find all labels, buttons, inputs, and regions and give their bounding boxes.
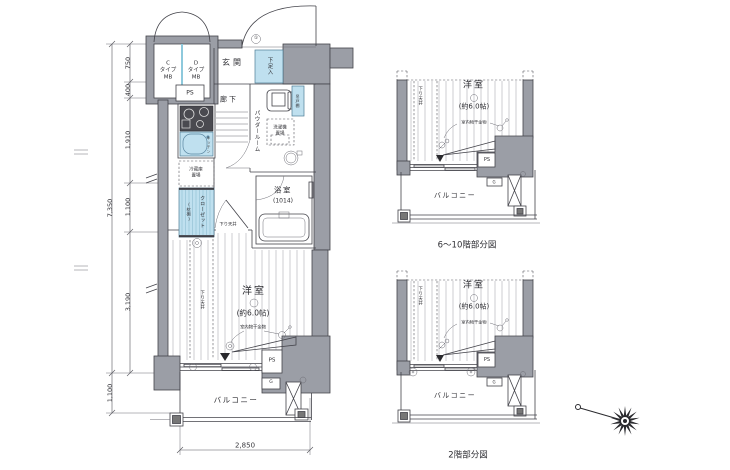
pp-upper-gas: G xyxy=(492,180,495,185)
vanity-sink-icon xyxy=(284,151,302,165)
laundry-note-label: 室内物干金物 xyxy=(240,325,266,330)
mb-d-line2: タイプ xyxy=(188,68,205,75)
entrance-label: 玄関 xyxy=(222,58,244,68)
pp-lower-balcony: バルコニー xyxy=(434,392,476,401)
pp-lower-room-size: (約6.0帖) xyxy=(459,303,490,312)
break-marks xyxy=(146,174,157,293)
mb-c-line3: MB xyxy=(164,74,173,81)
ps-top-label: PS xyxy=(186,89,193,97)
mb-box-c: C タイプ MB xyxy=(160,61,177,82)
washer-line2: 置場 xyxy=(276,131,285,137)
pp-lower-ps: PS xyxy=(484,357,490,363)
bathroom-size-label: (1014) xyxy=(273,197,293,205)
dim-seg-750: 750 xyxy=(124,57,132,69)
window xyxy=(180,353,262,371)
room-size-label: (約6.0帖) xyxy=(237,308,270,317)
pp-upper-lowered-ceiling: 下り天井 xyxy=(417,86,422,105)
dim-seg-3190: 3,190 xyxy=(124,293,132,312)
dim-width: 2,850 xyxy=(235,442,255,451)
closet xyxy=(179,188,214,237)
toilet-icon xyxy=(267,90,294,111)
mb-d-line3: MB xyxy=(192,74,201,81)
entry-arrow xyxy=(220,353,230,361)
lowered-ceiling-label-v: 下り天井 xyxy=(199,290,204,309)
laundry-hook-icon xyxy=(226,342,234,350)
pp-upper-ps: PS xyxy=(484,157,490,163)
hallway-label: 廊下 xyxy=(220,96,238,105)
compass-north-icon xyxy=(576,405,640,437)
fridge-label: 冷蔵庫 置場 xyxy=(189,167,203,178)
pp-lower-lowered-ceiling: 下り天井 xyxy=(417,286,422,305)
rail-end-box xyxy=(170,413,183,426)
kitchen-label: キッチン xyxy=(207,136,212,154)
pp-lower-caption: 2階部分図 xyxy=(448,451,487,462)
cabinet-label: 吊戸棚 xyxy=(296,94,301,108)
dim-total-height: 7,350 xyxy=(106,199,114,218)
pp-lower-gas: G xyxy=(492,380,495,385)
stove-icon xyxy=(180,106,213,131)
pp-upper-caption: 6〜10階部分図 xyxy=(438,241,497,252)
main-floor-plan xyxy=(146,6,353,426)
mb-c-line2: タイプ xyxy=(160,68,177,75)
ps-bottom-label: PS xyxy=(269,358,276,365)
dim-seg-1910: 1,910 xyxy=(124,131,132,150)
floorplan-sheet: C タイプ MB D タイプ MB PS ① 玄関 下足入 廊下 キッチン 冷蔵… xyxy=(0,0,730,470)
mb-d-line1: D xyxy=(194,61,198,68)
entry-mark: ① xyxy=(254,36,258,42)
dim-seg-1100: 1,100 xyxy=(124,198,132,217)
gas-label: G xyxy=(269,380,273,386)
dim-balcony-depth: 1,100 xyxy=(106,384,114,403)
room-label: 洋室 xyxy=(242,286,266,299)
powder-room-label: パウダールーム xyxy=(253,110,260,152)
ceiling-light-icon xyxy=(250,299,258,307)
pp-upper-balcony: バルコニー xyxy=(434,192,476,201)
dim-seg-400: 400 xyxy=(124,84,132,96)
closet-sub-label: (枕棚) xyxy=(186,202,191,222)
pp-upper-room-size: (約6.0帖) xyxy=(459,103,490,112)
closet-label: クローゼット xyxy=(199,196,205,229)
bathroom-label: 浴室 xyxy=(274,185,292,194)
mb-box-d: D タイプ MB xyxy=(188,61,205,82)
pp-lower-room: 洋室 xyxy=(463,280,485,291)
drain-box xyxy=(295,409,308,420)
shoe-box-label: 下足入 xyxy=(266,57,273,75)
pp-upper-room: 洋室 xyxy=(463,80,485,91)
hall-floor xyxy=(216,112,248,142)
washer-label: 洗濯機 置場 xyxy=(273,125,287,136)
balcony-label: バルコニー xyxy=(214,395,259,404)
mb-c-line1: C xyxy=(166,61,170,68)
lowered-ceiling-label-h: 下り天井 xyxy=(219,222,236,227)
fridge-line2: 置場 xyxy=(192,173,201,179)
pp-lower-laundry-note: 室内物干金物 xyxy=(461,319,486,324)
bathtub-icon xyxy=(259,212,309,241)
pp-upper-laundry-note: 室内物干金物 xyxy=(461,119,486,124)
